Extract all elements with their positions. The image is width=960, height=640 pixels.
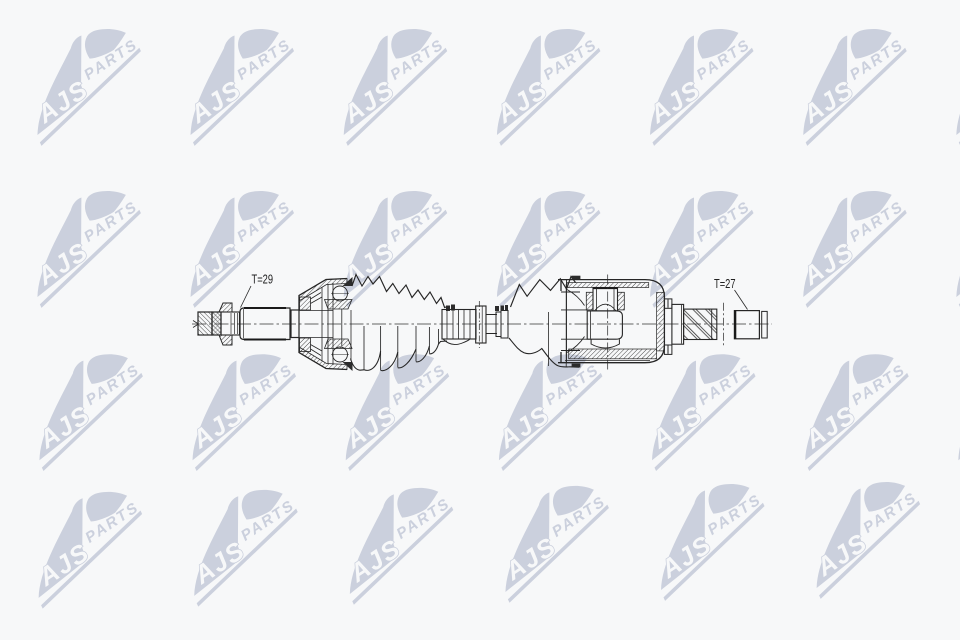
svg-text:T=27: T=27 bbox=[714, 276, 736, 291]
svg-text:T=29: T=29 bbox=[252, 272, 274, 287]
